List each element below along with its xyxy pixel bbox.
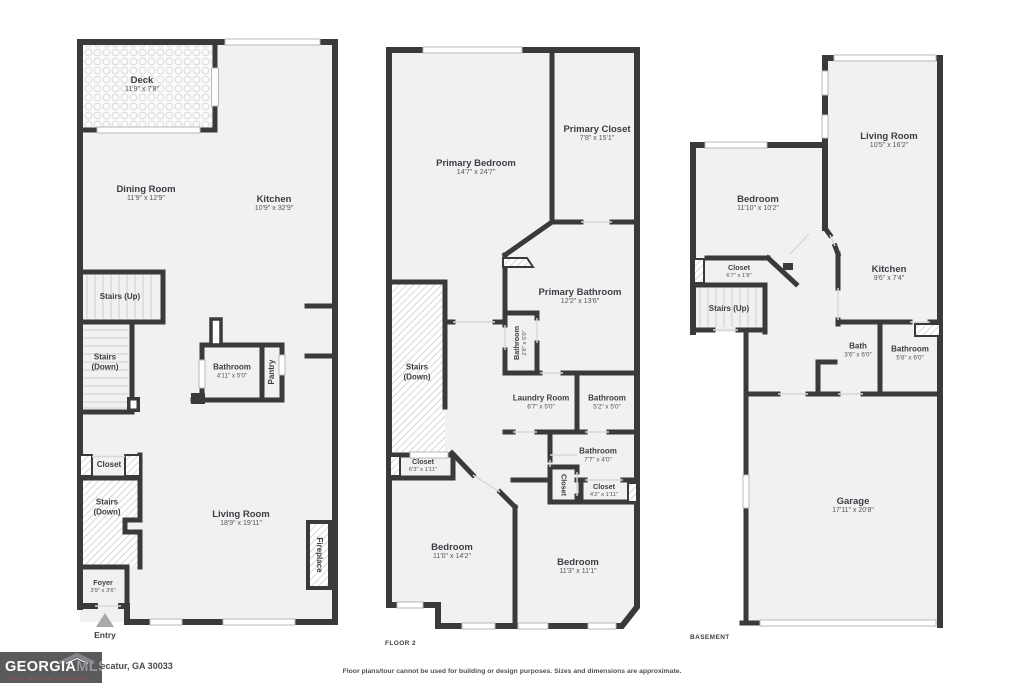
basement-plan-svg <box>688 32 948 650</box>
door-hatch-block <box>503 258 533 267</box>
floorplan-floor1: Deck 11'9" x 7'8" Dining Room 11'9" x 12… <box>75 30 345 650</box>
floorplan-floor2: Primary Bedroom 14'7" x 24'7" Primary Cl… <box>385 30 645 655</box>
stairs-down-hatch <box>389 282 445 452</box>
closet-wall-block <box>80 455 92 476</box>
plumbing-chase <box>211 319 221 345</box>
floorplan-basement: Living Room 10'5" x 16'2" Bedroom 11'10"… <box>688 32 948 650</box>
fireplace-box <box>308 522 330 588</box>
deck-pattern <box>82 44 213 128</box>
closet-wall-block <box>628 483 637 502</box>
floor1-plan-svg <box>75 30 345 650</box>
closet-wall-block <box>694 259 704 283</box>
closet-wall-block <box>390 456 400 476</box>
logo-brand: GEORGIAMLS <box>5 659 102 675</box>
disclaimer-text: Floor plans/tour cannot be used for buil… <box>0 668 1024 675</box>
closet-wall-block <box>125 455 140 476</box>
entry-label: Entry <box>94 630 116 640</box>
floor2-plan-svg <box>385 30 645 655</box>
logo-tagline: REAL ESTATE SERVICES <box>9 676 89 681</box>
wall-post <box>783 263 793 270</box>
bathroom-hatch-block <box>915 324 940 336</box>
floorplan-page: Deck 11'9" x 7'8" Dining Room 11'9" x 12… <box>0 0 1024 683</box>
basement-caption: BASEMENT <box>690 634 730 641</box>
georgia-mls-logo: GEORGIAMLS REAL ESTATE SERVICES <box>0 652 102 683</box>
floor2-caption: FLOOR 2 <box>385 640 416 647</box>
